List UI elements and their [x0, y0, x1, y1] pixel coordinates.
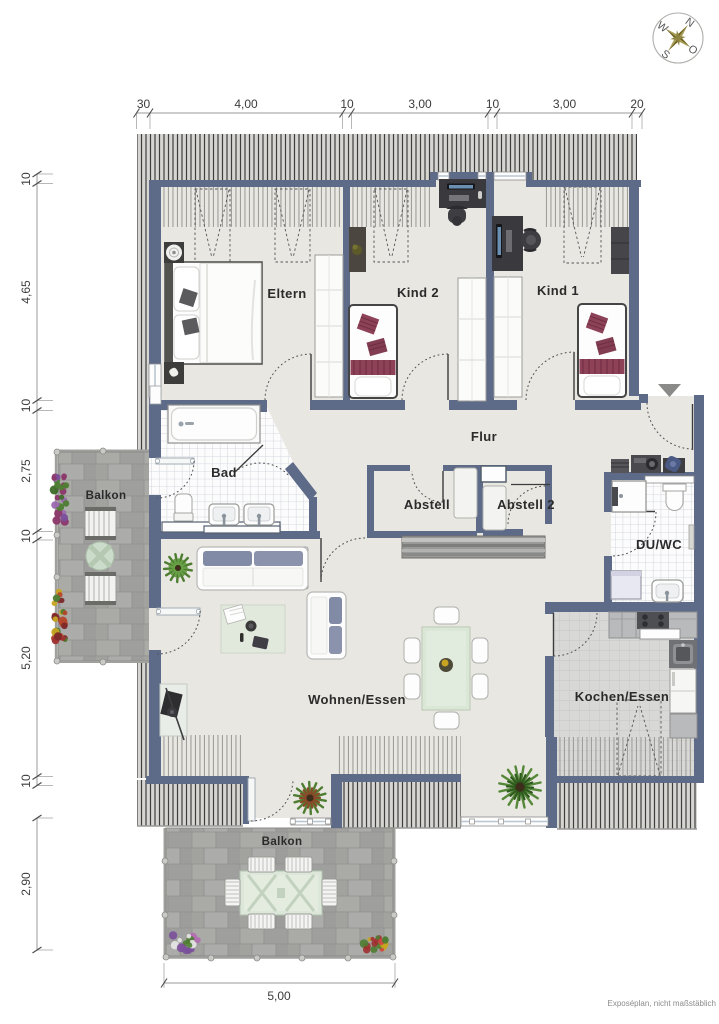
- svg-text:10: 10: [19, 774, 33, 788]
- svg-text:2,90: 2,90: [19, 872, 33, 896]
- svg-text:Bad: Bad: [211, 465, 237, 480]
- svg-text:Flur: Flur: [471, 429, 497, 444]
- svg-text:10: 10: [19, 529, 33, 543]
- svg-text:Eltern: Eltern: [267, 286, 306, 301]
- svg-text:W: W: [654, 19, 670, 35]
- svg-text:Abstell: Abstell: [404, 497, 450, 512]
- svg-text:30: 30: [137, 97, 151, 111]
- svg-text:10: 10: [340, 97, 354, 111]
- svg-text:Abstell 2: Abstell 2: [497, 497, 555, 512]
- svg-text:10: 10: [486, 97, 500, 111]
- svg-text:10: 10: [19, 172, 33, 186]
- svg-text:Balkon: Balkon: [262, 836, 303, 848]
- svg-text:S: S: [659, 48, 672, 62]
- svg-text:Balkon: Balkon: [86, 490, 127, 502]
- svg-text:3,00: 3,00: [553, 97, 577, 111]
- svg-text:5,00: 5,00: [267, 989, 291, 1003]
- svg-text:5,20: 5,20: [19, 646, 33, 670]
- svg-text:10: 10: [19, 399, 33, 413]
- svg-text:Exposéplan, nicht maßstäblich: Exposéplan, nicht maßstäblich: [608, 999, 717, 1008]
- svg-text:3,00: 3,00: [408, 97, 432, 111]
- svg-text:Kind 1: Kind 1: [537, 283, 579, 298]
- svg-text:4,00: 4,00: [234, 97, 258, 111]
- svg-text:4,65: 4,65: [19, 280, 33, 304]
- svg-text:Wohnen/Essen: Wohnen/Essen: [308, 692, 406, 707]
- svg-text:Kochen/Essen: Kochen/Essen: [575, 689, 669, 704]
- svg-text:DU/WC: DU/WC: [636, 537, 682, 552]
- svg-text:2,75: 2,75: [19, 459, 33, 483]
- svg-text:N: N: [683, 16, 697, 30]
- svg-text:20: 20: [630, 97, 644, 111]
- svg-text:Kind 2: Kind 2: [397, 285, 439, 300]
